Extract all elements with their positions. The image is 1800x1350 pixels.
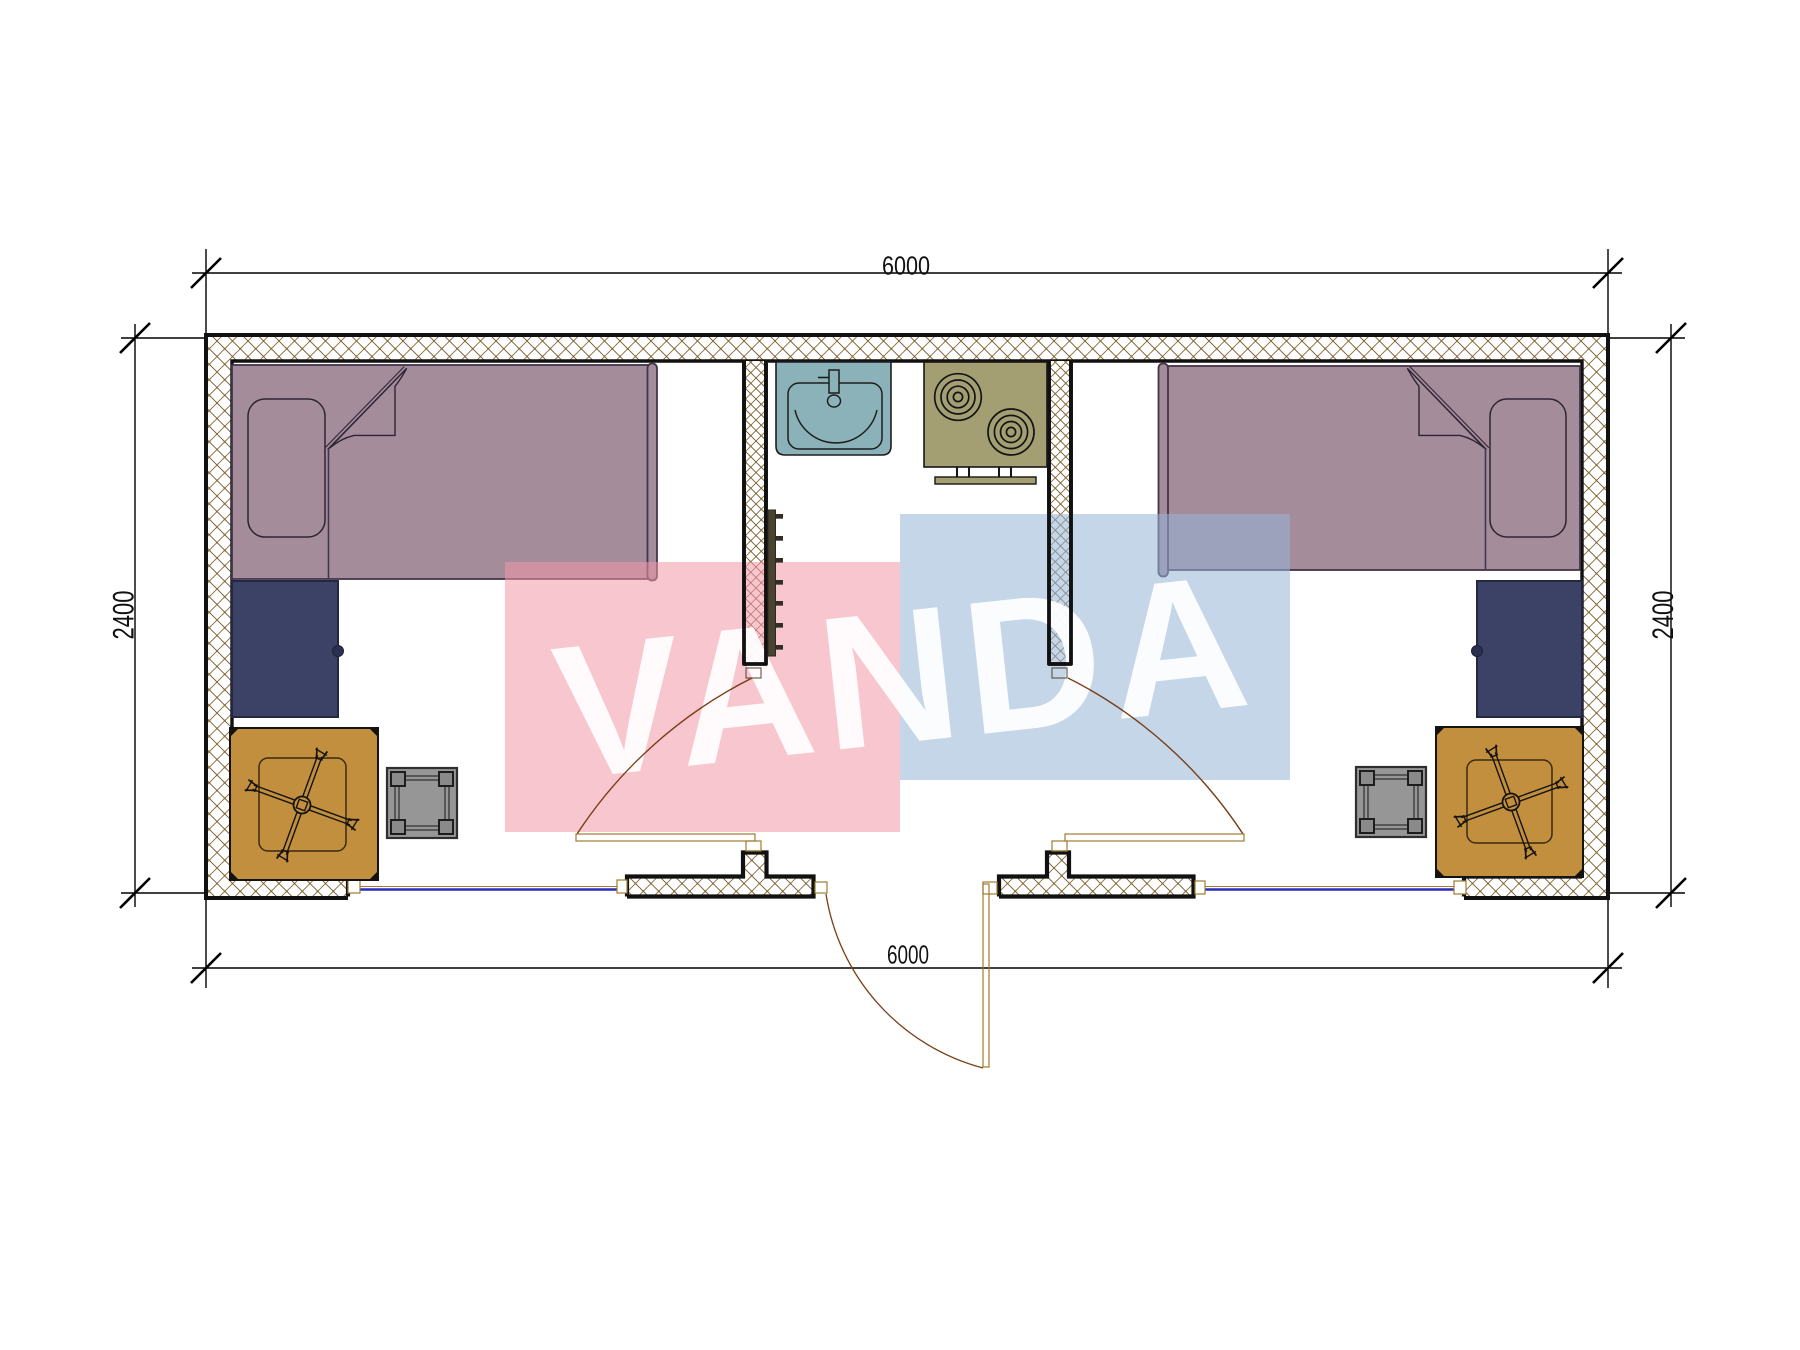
svg-text:2400: 2400: [1647, 591, 1680, 640]
svg-text:6000: 6000: [882, 251, 930, 281]
svg-text:6000: 6000: [887, 940, 929, 970]
svg-text:2400: 2400: [108, 591, 141, 640]
